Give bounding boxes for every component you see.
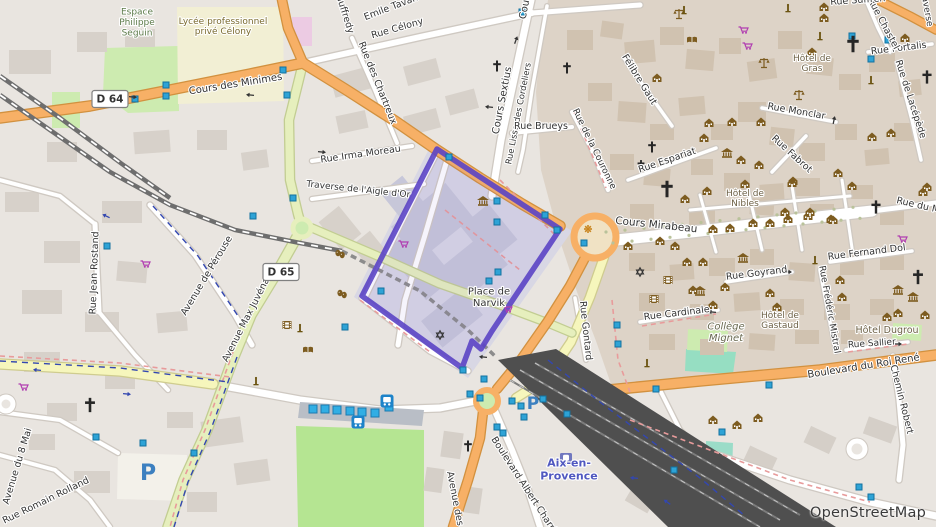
node-marker: [481, 376, 487, 382]
building: [678, 96, 705, 116]
bus-stop-marker: [358, 408, 366, 416]
building: [167, 412, 193, 428]
node-marker: [284, 92, 290, 98]
node-marker: [467, 391, 473, 397]
node-marker: [766, 382, 772, 388]
node-marker: [446, 154, 452, 160]
map-label: EspacePhilippeSeguin: [119, 8, 155, 39]
building: [77, 32, 107, 52]
book-icon: [303, 347, 313, 353]
building: [839, 74, 861, 90]
building: [691, 159, 713, 175]
building: [719, 38, 741, 54]
node-marker: [494, 219, 500, 225]
bus-stop-marker: [321, 405, 329, 413]
building: [187, 492, 217, 512]
node-marker: [163, 82, 169, 88]
parking-icon: P: [140, 461, 156, 486]
node-marker: [104, 243, 110, 249]
park_bright-area: [296, 426, 424, 527]
node-marker: [518, 403, 524, 409]
building: [440, 431, 463, 460]
building: [748, 333, 775, 351]
node-marker: [191, 450, 197, 456]
film-icon: [283, 321, 292, 329]
map-canvas[interactable]: PPEspacePhilippeSeguinLycée professionne…: [0, 0, 936, 527]
node-marker: [509, 398, 515, 404]
node-marker: [671, 467, 677, 473]
map-label: CollègeMignet: [707, 320, 744, 344]
building: [778, 31, 802, 49]
node-marker: [614, 322, 620, 328]
building: [44, 241, 80, 263]
attribution-link[interactable]: OpenStreetMap: [810, 505, 926, 521]
building: [241, 149, 269, 170]
building: [685, 49, 715, 71]
map-label: Rue Brueys: [514, 121, 568, 132]
node-marker: [540, 396, 546, 402]
bus-icon: [381, 395, 394, 408]
node-marker: [554, 227, 560, 233]
node-marker: [93, 434, 99, 440]
building: [22, 290, 62, 314]
map-viewport[interactable]: PPEspacePhilippeSeguinLycée professionne…: [0, 0, 936, 527]
building: [617, 101, 646, 123]
map-label: Hôtel Dugrou: [855, 325, 918, 336]
node-marker: [460, 367, 466, 373]
building: [5, 192, 39, 212]
bus-stop-marker: [309, 405, 317, 413]
node-marker: [856, 484, 862, 490]
map-label: Hôtel deGastaud: [761, 310, 799, 331]
building: [9, 50, 51, 74]
route-shield-label: D 64: [97, 94, 124, 106]
route-shield-label: D 65: [268, 267, 295, 279]
map-label: Place deNarvik: [468, 286, 510, 309]
node-marker: [250, 213, 256, 219]
building: [660, 27, 684, 45]
bus-icon: [352, 416, 365, 429]
building: [423, 467, 444, 493]
node-marker: [163, 93, 169, 99]
building: [29, 434, 55, 450]
building: [567, 30, 593, 50]
fountain-icon: [584, 225, 592, 233]
node-marker: [521, 414, 527, 420]
building: [102, 201, 142, 223]
node-marker: [868, 494, 874, 500]
node-marker: [542, 212, 548, 218]
building: [629, 253, 655, 271]
bus-stop-marker: [346, 407, 354, 415]
building: [870, 299, 894, 315]
building: [835, 124, 857, 140]
book-icon: [687, 37, 697, 43]
building: [733, 292, 760, 312]
building: [747, 58, 778, 82]
building: [197, 130, 227, 150]
building: [795, 330, 819, 344]
building: [588, 83, 612, 101]
building: [794, 178, 820, 196]
node-marker: [378, 288, 384, 294]
bus-stop-marker: [371, 409, 379, 417]
node-marker: [486, 278, 492, 284]
film-icon: [650, 295, 659, 303]
node-marker: [140, 440, 146, 446]
building: [234, 459, 271, 486]
node-marker: [290, 195, 296, 201]
building: [600, 21, 624, 40]
node-marker: [500, 430, 506, 436]
node-marker: [495, 269, 501, 275]
map-label: Hôtel deNibles: [726, 188, 764, 209]
node-marker: [615, 341, 621, 347]
parking-icon: P: [527, 394, 539, 414]
node-marker: [719, 429, 725, 435]
bus-stop-marker: [333, 406, 341, 414]
building: [610, 154, 634, 170]
building: [864, 148, 889, 166]
node-marker: [342, 324, 348, 330]
film-icon: [664, 276, 673, 284]
node-marker: [494, 424, 500, 430]
building: [649, 334, 675, 350]
node-marker: [581, 240, 587, 246]
building: [133, 130, 170, 154]
node-marker: [653, 386, 659, 392]
node-marker: [564, 411, 570, 417]
map-label: Aix-en-Provence: [540, 457, 598, 483]
node-marker: [494, 198, 500, 204]
building: [711, 124, 733, 140]
node-marker: [477, 395, 483, 401]
